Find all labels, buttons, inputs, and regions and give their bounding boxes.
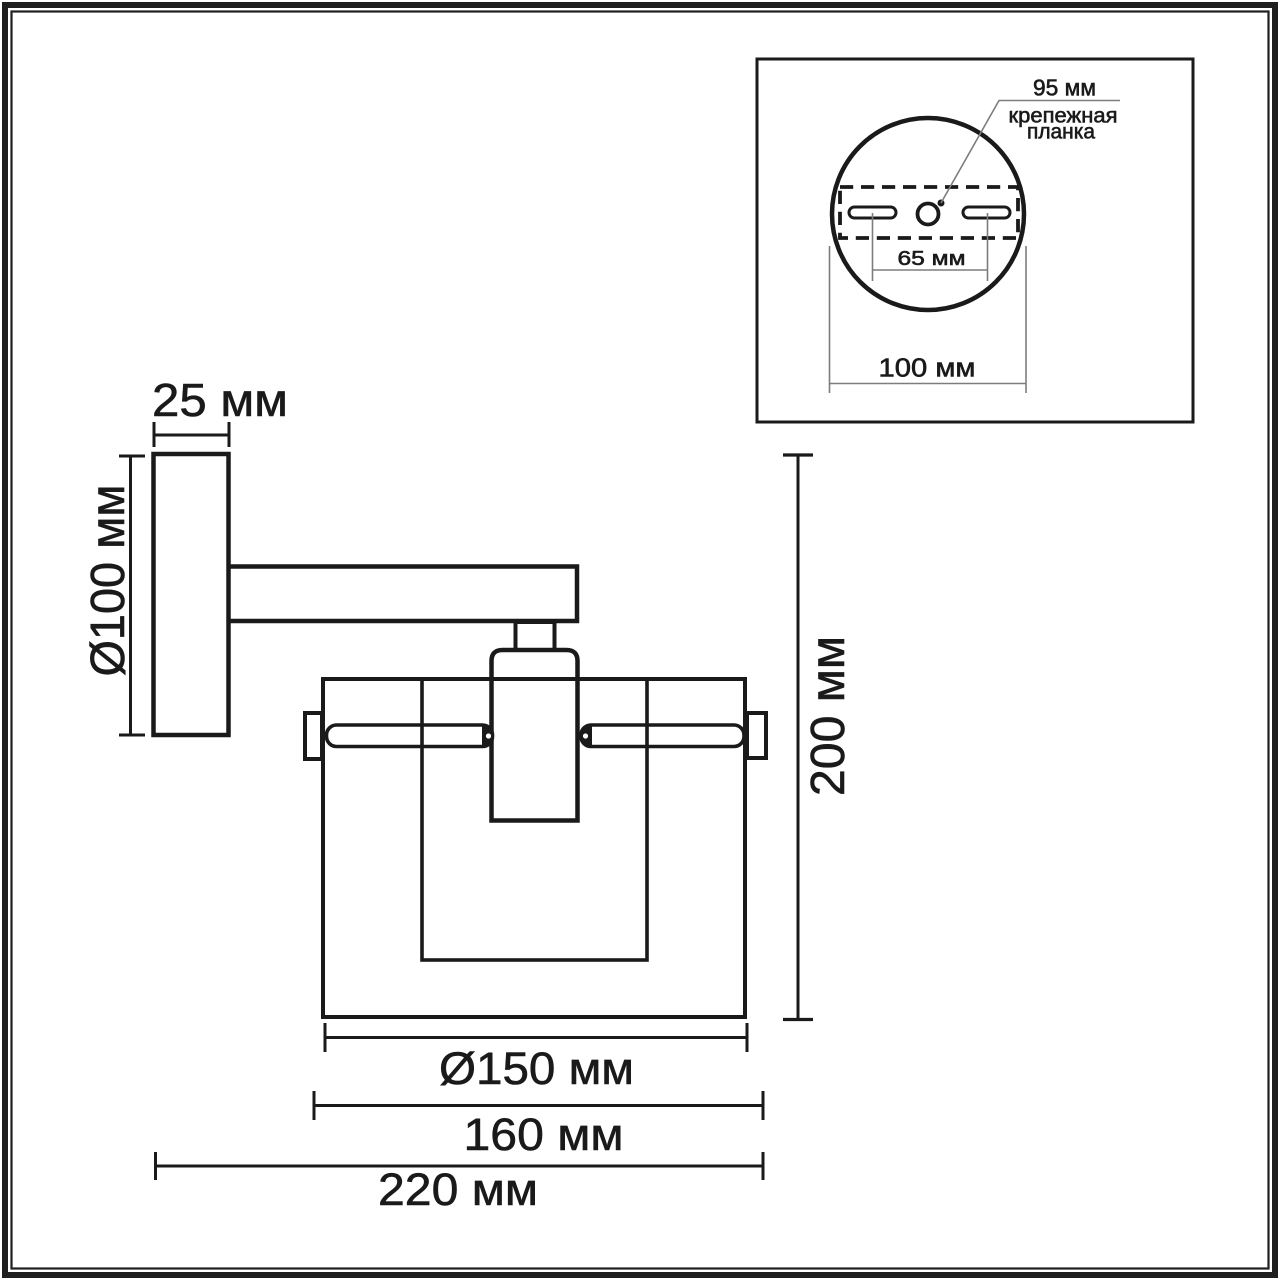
svg-text:220 мм: 220 мм xyxy=(378,1164,538,1215)
svg-text:планка: планка xyxy=(1027,121,1095,144)
svg-text:95 мм: 95 мм xyxy=(1033,75,1096,101)
svg-text:Ø150 мм: Ø150 мм xyxy=(439,1043,634,1094)
svg-text:100 мм: 100 мм xyxy=(879,355,976,383)
svg-text:Ø100 мм: Ø100 мм xyxy=(82,485,135,677)
svg-text:160 мм: 160 мм xyxy=(464,1109,624,1160)
svg-text:200 мм: 200 мм xyxy=(802,636,855,796)
svg-text:65 мм: 65 мм xyxy=(898,247,966,270)
svg-text:25 мм: 25 мм xyxy=(152,374,288,426)
